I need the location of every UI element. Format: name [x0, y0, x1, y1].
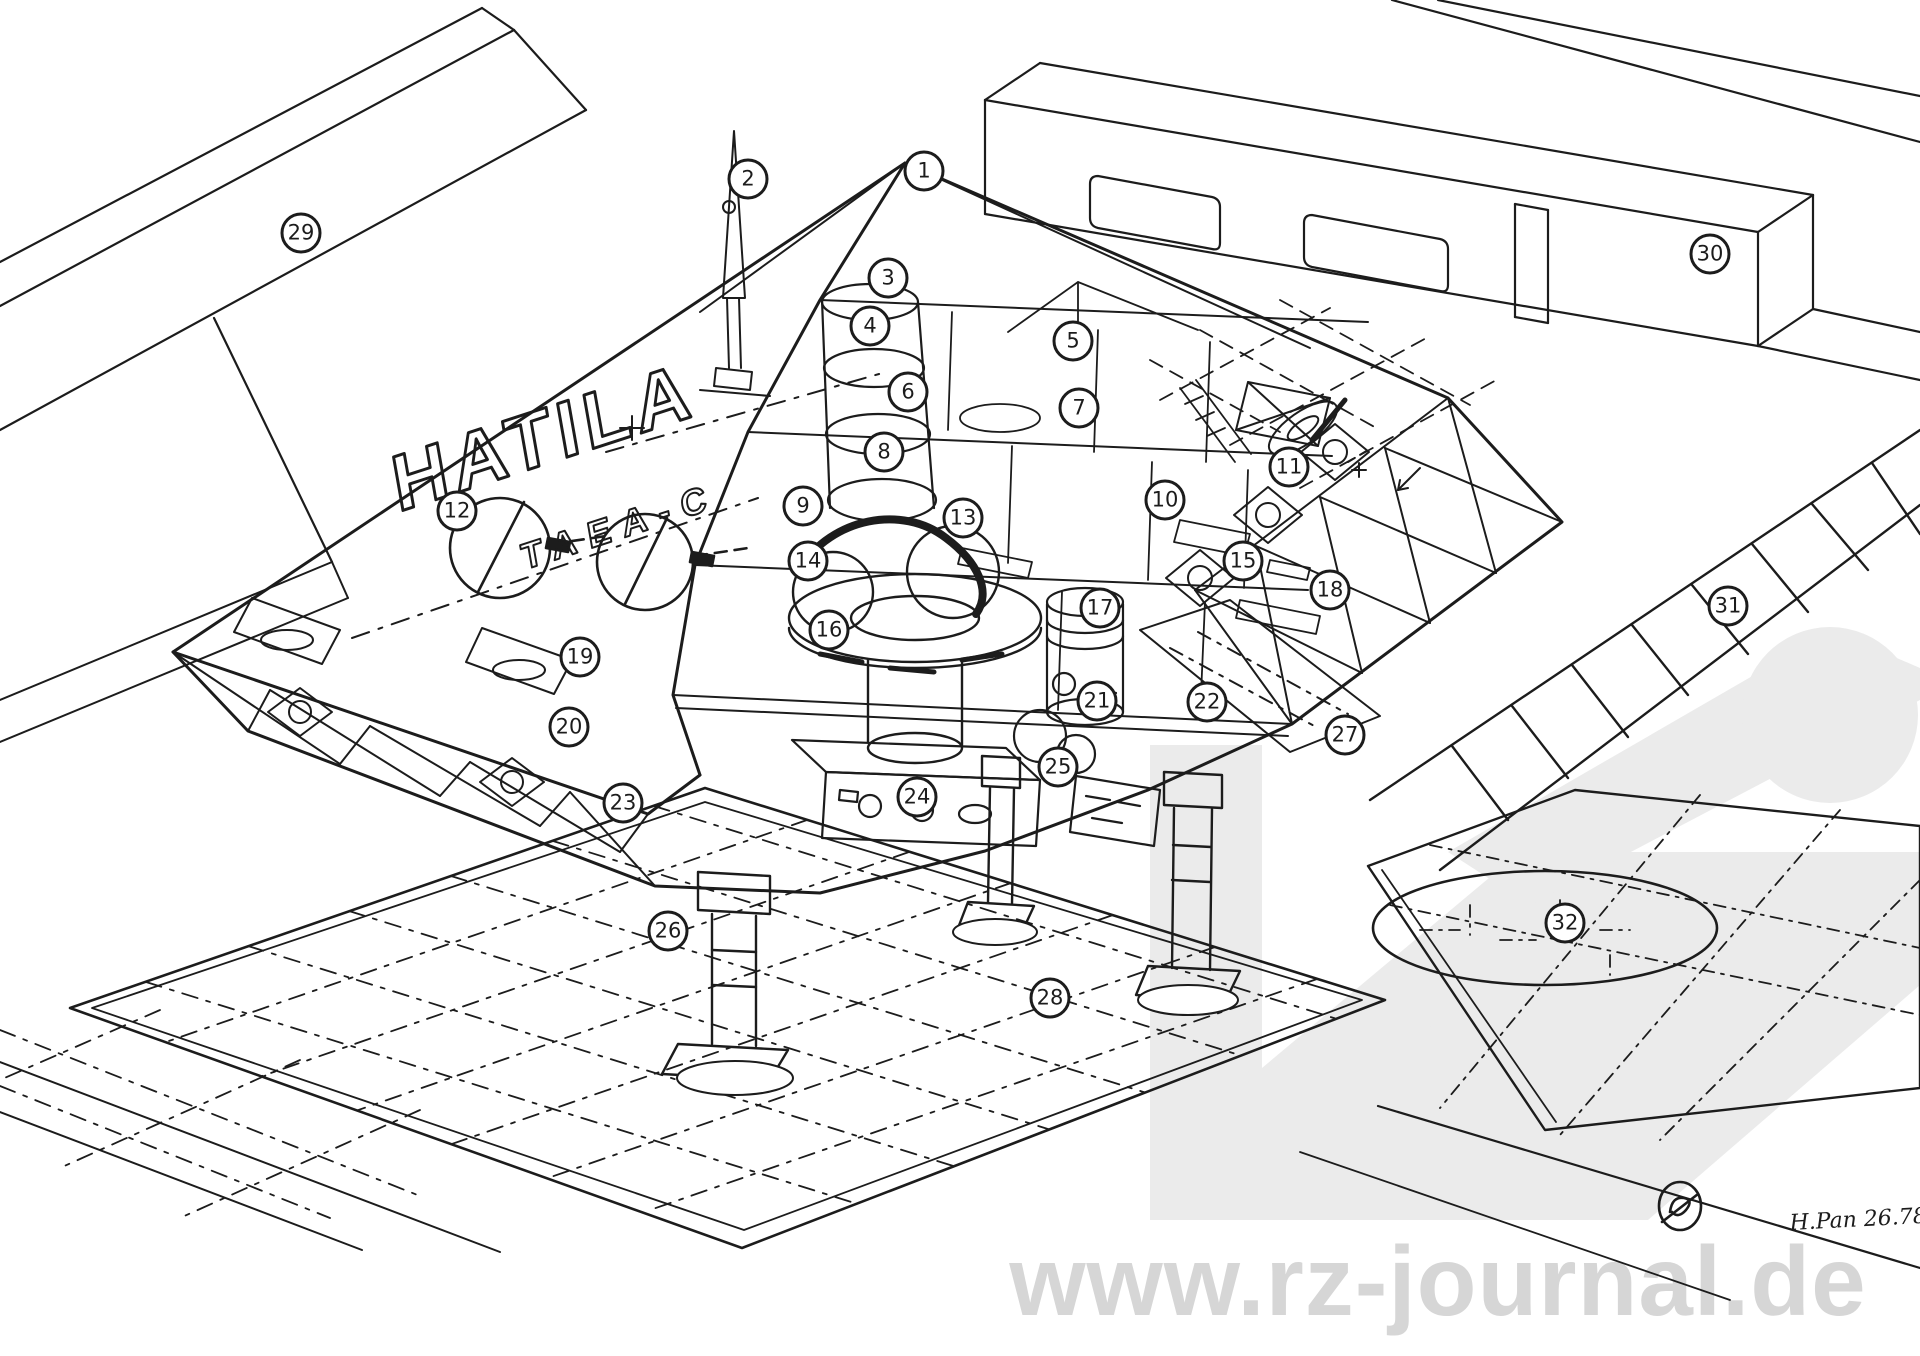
artist-signature: H.Pan 26.78 [1788, 1204, 1920, 1236]
watermark-url-text: www.rz-journal.de [1008, 1226, 1866, 1336]
central-lift-shaft [822, 284, 936, 521]
blueprint-scan-page: www.rz-journal.de [0, 0, 1920, 1356]
deck-bottom-left [0, 1010, 500, 1252]
hull-outline [173, 163, 1562, 893]
apex-lines [700, 163, 1310, 348]
hull-hatch-recesses [234, 598, 572, 806]
boarding-ramp [1140, 600, 1380, 752]
hull-name-markings: HATILA TAEA-C [386, 344, 721, 578]
spacecraft-cutaway: HATILA TAEA-C [173, 131, 1562, 1080]
antenna-mast [700, 131, 770, 396]
rim-facets-left [173, 652, 655, 886]
line-art-canvas: www.rz-journal.de [0, 0, 1920, 1356]
corner-slab [1392, 0, 1920, 142]
hangar-building-right [985, 63, 1920, 380]
belly-module [792, 710, 1160, 846]
rim-facets-right [1195, 398, 1562, 724]
